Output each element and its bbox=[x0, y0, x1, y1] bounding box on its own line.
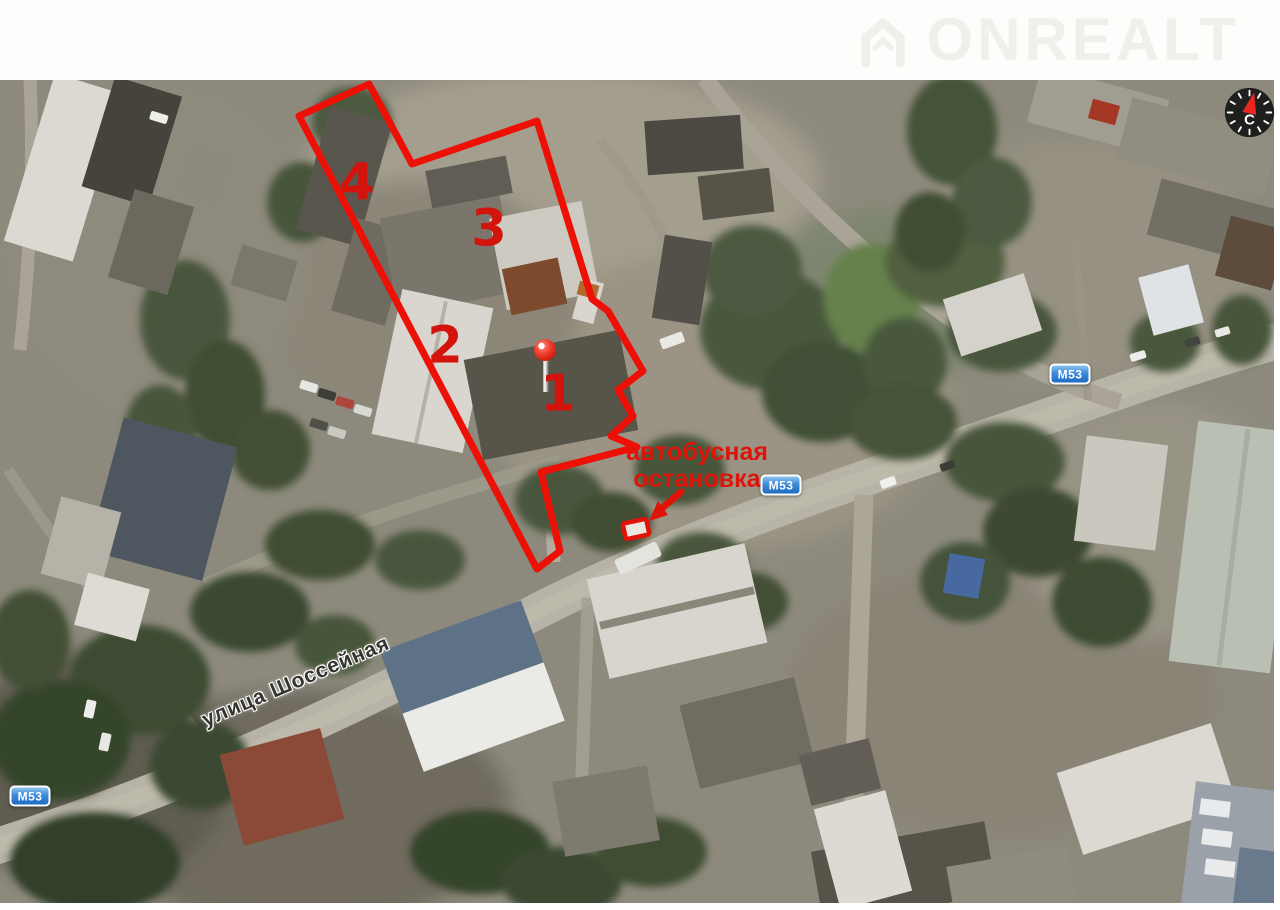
plot-number-2: 2 bbox=[427, 321, 463, 372]
brand-watermark: ONREALT bbox=[852, 4, 1240, 76]
brand-name: ONREALT bbox=[926, 4, 1240, 76]
plot-number-4: 4 bbox=[339, 158, 375, 209]
compass-control[interactable]: С bbox=[1223, 86, 1276, 139]
brand-house-icon bbox=[852, 9, 914, 71]
route-badge-m53-right: М53 bbox=[1050, 364, 1091, 385]
compass-north-letter: С bbox=[1244, 111, 1255, 128]
plot-number-3: 3 bbox=[471, 204, 507, 255]
bus-stop-label: автобусная остановка bbox=[626, 439, 768, 493]
plot-number-1: 1 bbox=[540, 369, 576, 420]
route-badge-m53-center: М53 bbox=[761, 475, 802, 496]
route-badge-m53-bottom-left: М53 bbox=[10, 786, 51, 807]
bus-stop-label-line1: автобусная bbox=[626, 439, 768, 466]
listing-map-screenshot: 1 2 3 4 автобусная остановка улица Шоссе… bbox=[0, 0, 1280, 910]
bus-stop-label-line2: остановка bbox=[626, 466, 768, 493]
bottom-edge-strip bbox=[0, 903, 1280, 910]
